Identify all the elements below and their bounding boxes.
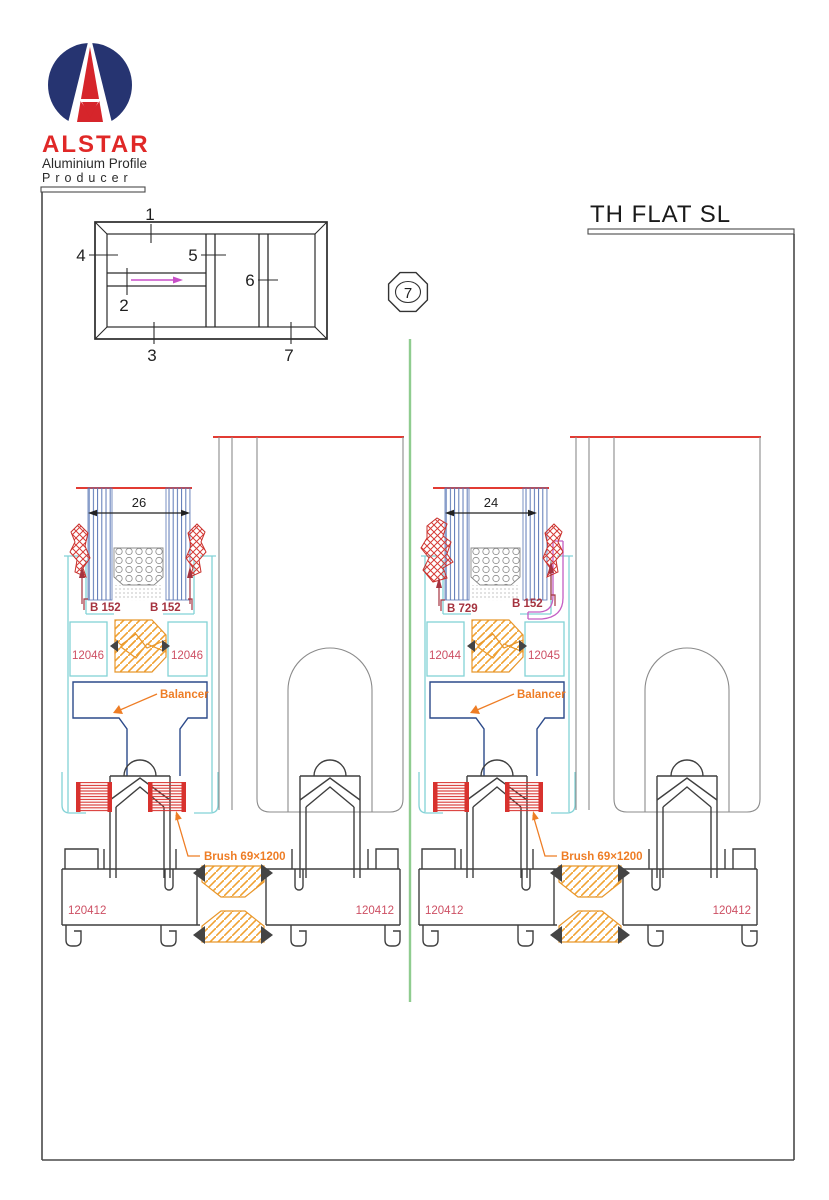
brush-callout: Brush 69×1200 [532, 811, 642, 863]
brush-label: Brush 69×1200 [561, 851, 643, 863]
sill-profile-left [62, 849, 400, 946]
logo-underline-bar [41, 187, 145, 192]
brush-callout: Brush 69×1200 [175, 811, 285, 863]
dimension-label: 26 [132, 495, 146, 510]
technical-drawing: ALSTAR Aluminium Profile Producer TH FLA… [0, 0, 829, 1200]
sill-profile-right [419, 849, 757, 946]
gasket-label-right: B 152 [512, 598, 543, 610]
fixed-panel-right [570, 437, 761, 878]
chamber-label-right: 12045 [528, 650, 560, 662]
sill-label-left: 120412 [425, 905, 463, 917]
gasket-label-left: B 152 [90, 602, 121, 614]
brush-label: Brush 69×1200 [204, 851, 286, 863]
detail-marker: 7 [389, 273, 428, 312]
sill-label-left: 120412 [68, 905, 106, 917]
chamber-label-right: 12046 [171, 650, 203, 662]
schematic-label-4: 4 [76, 246, 85, 265]
dimension-label: 24 [484, 495, 498, 510]
sill-label-right: 120412 [713, 905, 751, 917]
slide-direction-arrowhead [173, 277, 183, 284]
schematic-outer-frame [95, 222, 327, 339]
gasket-label-left: B 729 [447, 603, 478, 615]
brand-subtitle-2: Producer [42, 171, 133, 185]
window-schematic: 1 4 2 3 5 6 7 [76, 205, 327, 365]
schematic-label-3: 3 [147, 346, 156, 365]
schematic-label-6: 6 [245, 271, 254, 290]
fixed-panel-left [213, 437, 404, 878]
sheet-title: TH FLAT SL [590, 201, 731, 228]
schematic-meeting-stile [206, 234, 215, 327]
balancer-label: Balancer [517, 689, 566, 701]
chamber-label-left: 12046 [72, 650, 104, 662]
detail-marker-number: 7 [404, 285, 412, 302]
drawing-sheet: ALSTAR Aluminium Profile Producer TH FLA… [0, 0, 829, 1200]
balancer-label: Balancer [160, 689, 209, 701]
gasket-label-right: B 152 [150, 602, 181, 614]
schematic-label-5: 5 [188, 246, 197, 265]
schematic-leader-lines [89, 224, 291, 344]
schematic-label-7: 7 [284, 346, 293, 365]
assembly-left: 26 B 152 B 152 12046 12046 Balancer Brus… [62, 437, 404, 946]
brand-name: ALSTAR [42, 131, 150, 158]
chamber-label-left: 12044 [429, 650, 462, 662]
schematic-label-1: 1 [145, 205, 154, 224]
gasket-left [70, 524, 90, 577]
assembly-right: 24 B 729 B 152 12044 12045 Balancer Brus… [419, 437, 761, 946]
sill-label-right: 120412 [356, 905, 394, 917]
balancer-callout: Balancer [470, 689, 566, 714]
title-underline-bar [588, 229, 794, 234]
schematic-corner-miters [95, 222, 327, 339]
company-logo: ALSTAR Aluminium Profile Producer [42, 34, 150, 185]
brand-subtitle-1: Aluminium Profile [42, 156, 147, 171]
balancer-callout: Balancer [113, 689, 209, 714]
schematic-label-2: 2 [119, 296, 128, 315]
